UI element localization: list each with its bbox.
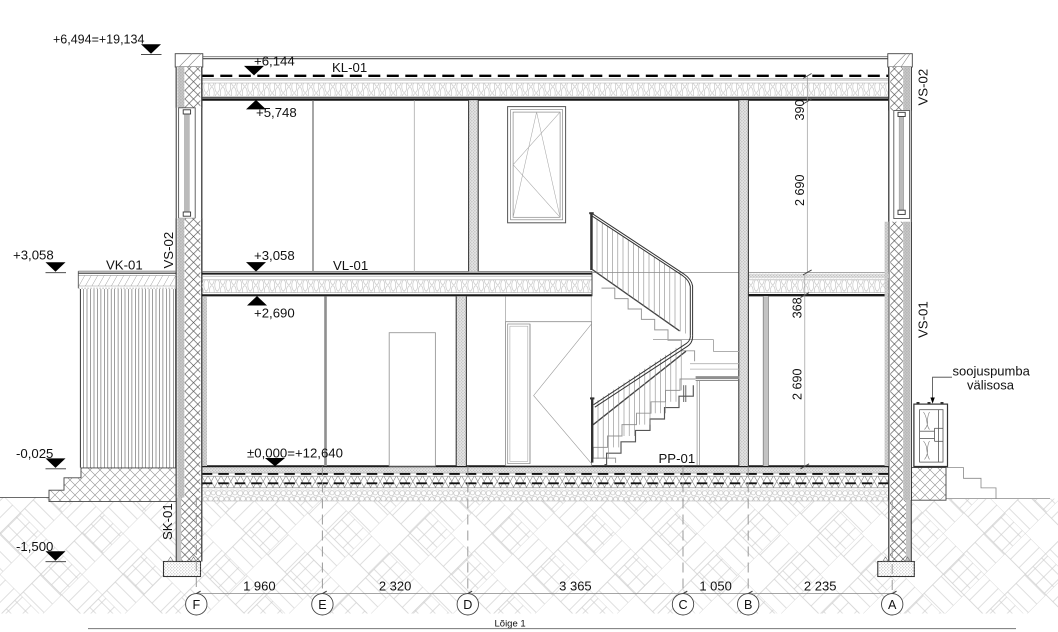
svg-text:1 960: 1 960 — [243, 579, 276, 594]
svg-text:2 320: 2 320 — [379, 579, 412, 594]
svg-text:VS-02: VS-02 — [916, 69, 931, 106]
svg-text:VK-01: VK-01 — [106, 258, 143, 273]
svg-text:A: A — [888, 598, 897, 612]
svg-text:välisosa: välisosa — [967, 377, 1015, 392]
svg-text:SK-01: SK-01 — [160, 503, 175, 540]
svg-text:390: 390 — [793, 99, 807, 120]
svg-text:2 690: 2 690 — [793, 174, 807, 206]
svg-text:F: F — [192, 598, 200, 612]
svg-text:KL-01: KL-01 — [332, 60, 367, 75]
svg-text:C: C — [678, 598, 687, 612]
svg-text:+3,058: +3,058 — [254, 248, 295, 263]
svg-text:3 365: 3 365 — [559, 579, 592, 594]
svg-text:368: 368 — [791, 297, 805, 318]
svg-text:Lõige 1: Lõige 1 — [495, 618, 526, 629]
svg-text:VL-01: VL-01 — [333, 258, 368, 273]
svg-text:+6,494=+19,134: +6,494=+19,134 — [53, 33, 144, 47]
svg-text:2 690: 2 690 — [791, 368, 805, 400]
svg-text:B: B — [744, 598, 752, 612]
svg-text:E: E — [318, 598, 326, 612]
svg-text:VS-02: VS-02 — [161, 232, 176, 269]
svg-text:+3,058: +3,058 — [13, 247, 54, 262]
svg-text:1 050: 1 050 — [699, 579, 732, 594]
svg-text:+5,748: +5,748 — [256, 105, 297, 120]
svg-text:PP-01: PP-01 — [659, 451, 696, 466]
svg-text:+2,690: +2,690 — [254, 305, 295, 320]
svg-text:±0,000=+12,640: ±0,000=+12,640 — [247, 446, 343, 461]
svg-text:VS-01: VS-01 — [916, 301, 931, 338]
svg-text:2 235: 2 235 — [804, 579, 837, 594]
svg-text:D: D — [463, 598, 472, 612]
